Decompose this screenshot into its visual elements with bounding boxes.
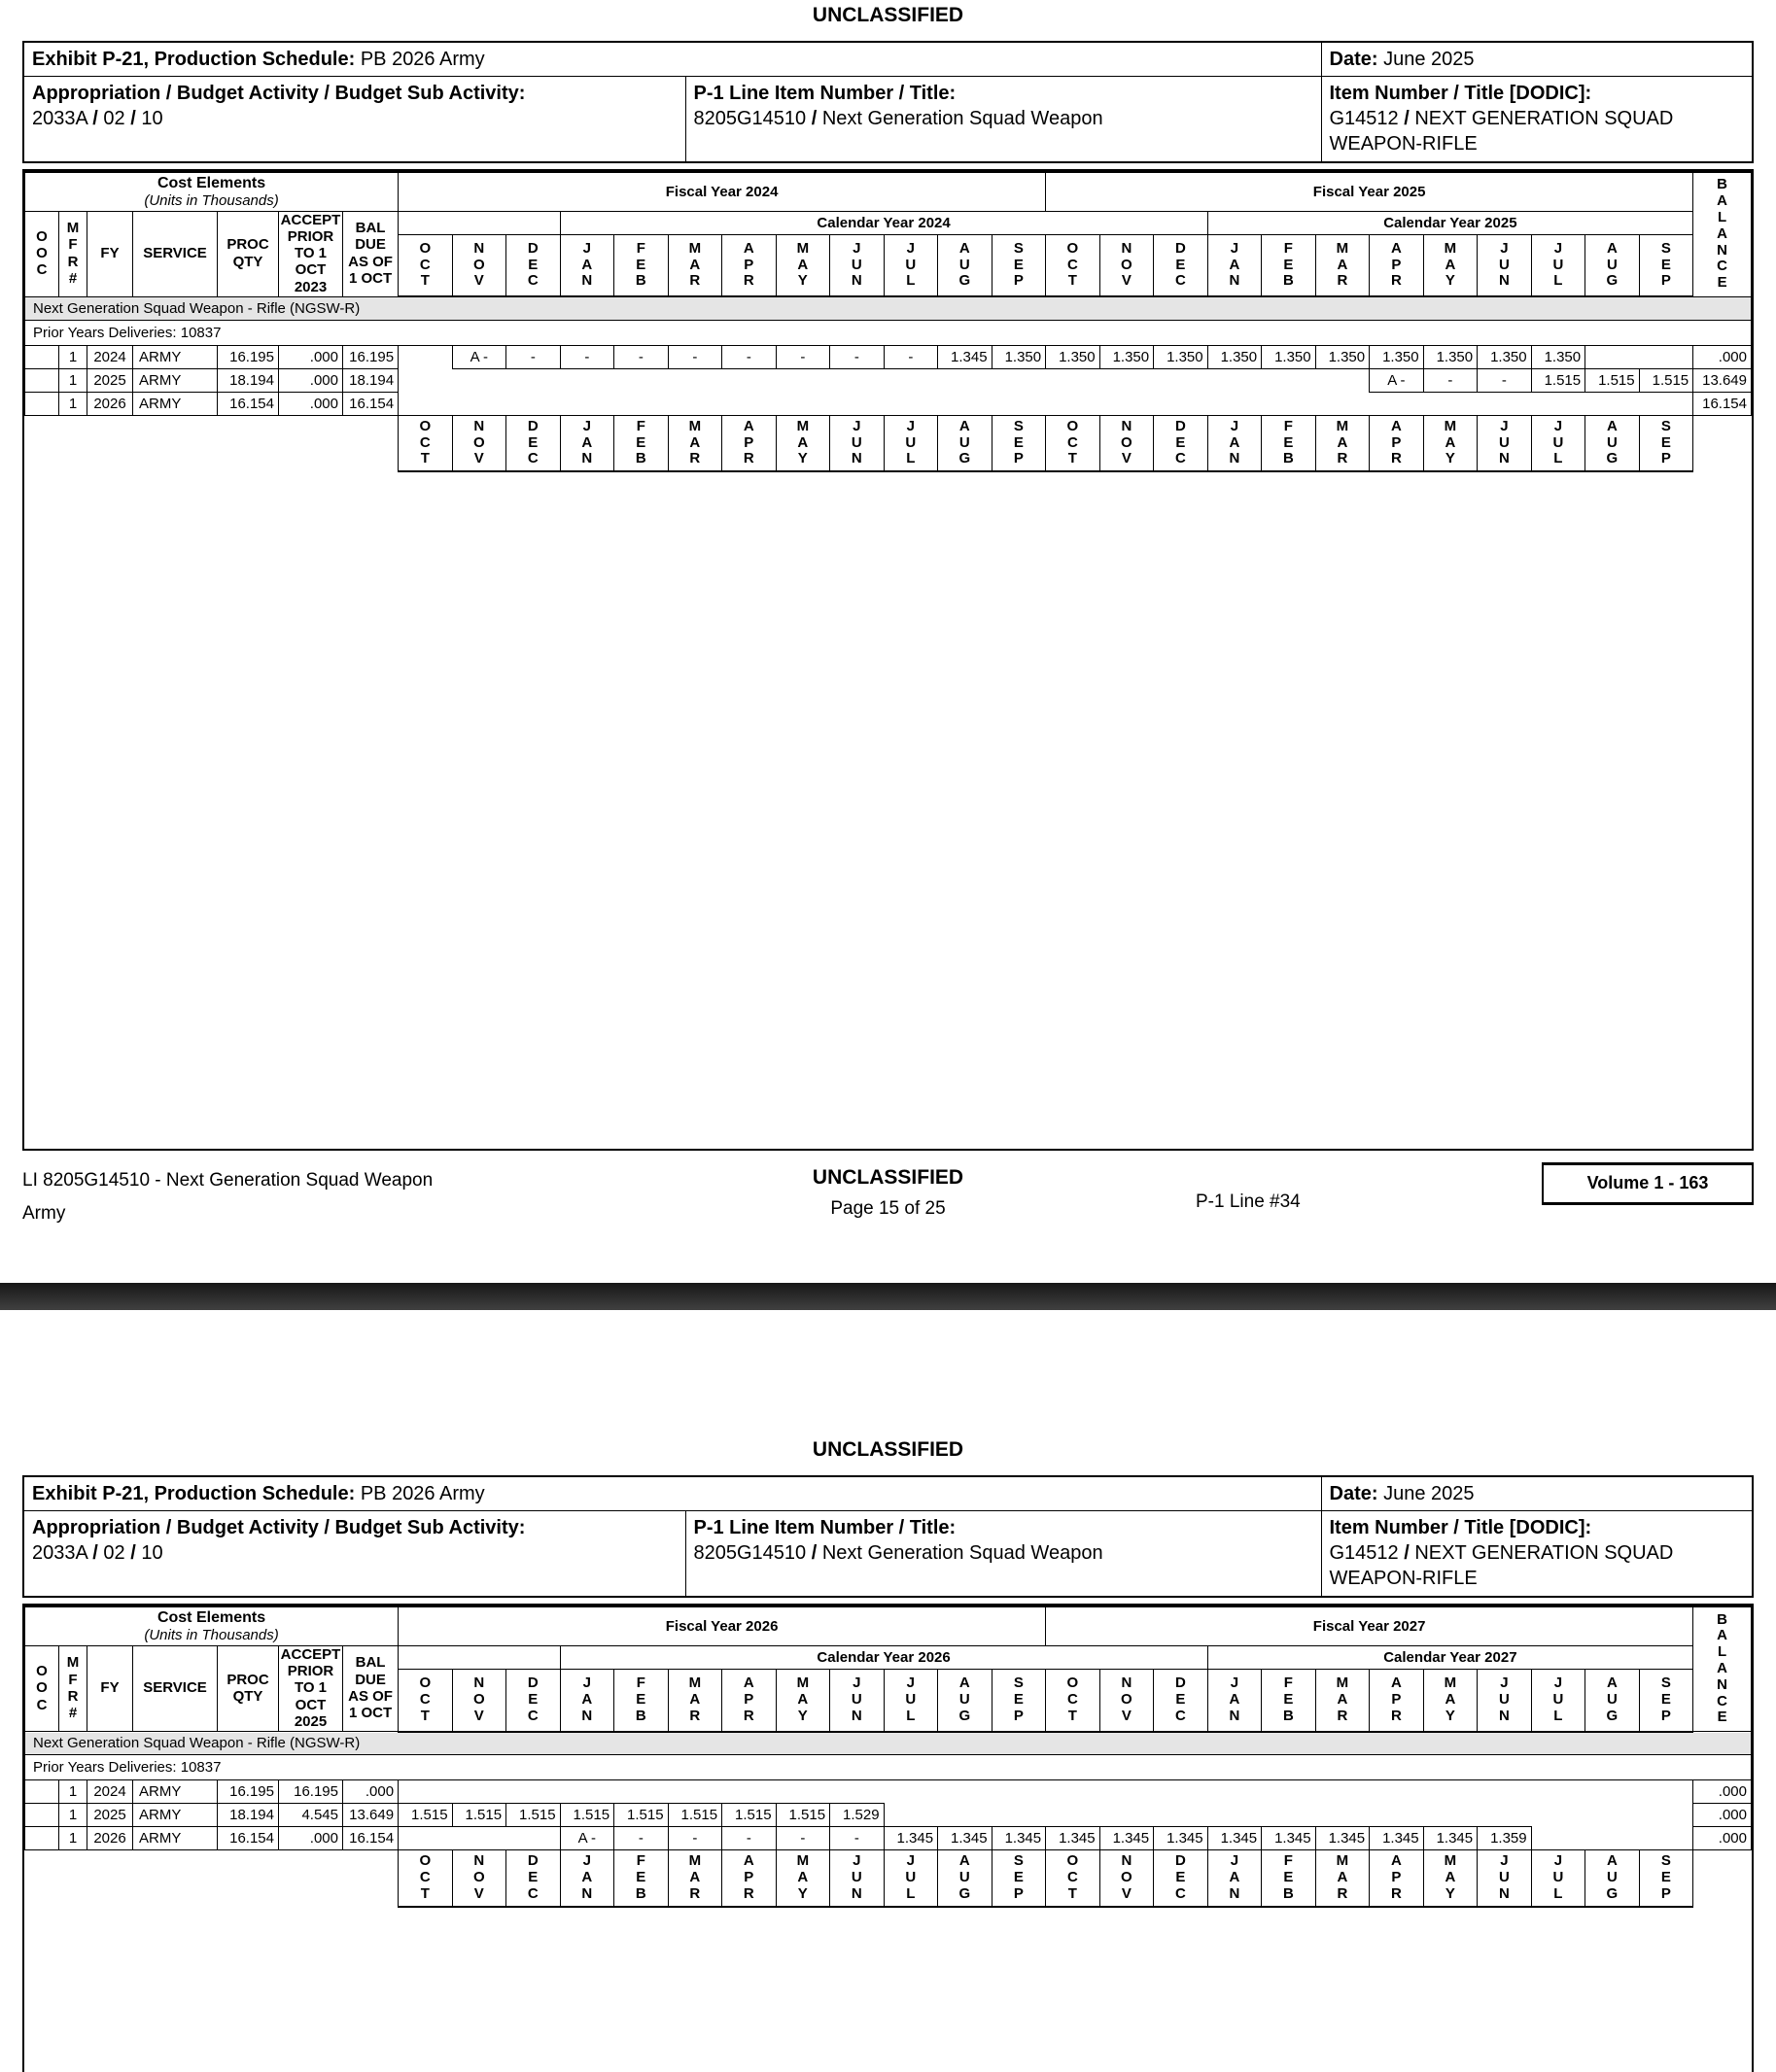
month-header-dec: D E C xyxy=(1154,234,1208,296)
p1-line-item-label: P-1 Line Item Number / Title: xyxy=(694,1515,1313,1540)
month-footer-jul: J U L xyxy=(884,1850,938,1907)
month-delivery-cell xyxy=(1046,392,1100,415)
ooc-cell xyxy=(25,1827,59,1850)
fy-header: FY xyxy=(87,1645,133,1731)
month-delivery-cell: 1.515 xyxy=(506,1804,561,1827)
month-delivery-cell: 1.350 xyxy=(1370,345,1424,368)
appropriation-label: Appropriation / Budget Activity / Budget… xyxy=(32,81,678,106)
month-delivery-cell xyxy=(1639,392,1693,415)
month-delivery-cell xyxy=(1154,392,1208,415)
mfr-header: M F R # xyxy=(59,211,87,296)
month-delivery-cell xyxy=(722,392,777,415)
fy-header: FY xyxy=(87,211,133,296)
footer-center: UNCLASSIFIED Page 15 of 25 xyxy=(22,1162,1754,1223)
month-delivery-cell xyxy=(1585,1827,1640,1850)
month-footer-mar: M A R xyxy=(1315,1850,1370,1907)
month-delivery-cell xyxy=(884,1780,938,1804)
month-footer-jul: J U L xyxy=(1531,1850,1585,1907)
proc-qty-cell: 16.154 xyxy=(218,392,279,415)
cost-elements-title: Cost Elements xyxy=(25,175,398,192)
balance-column-header: B A L A N C E xyxy=(1693,1606,1752,1731)
month-header-apr: A P R xyxy=(1370,234,1424,296)
service-cell: ARMY xyxy=(133,1827,218,1850)
p1-line-item-value: 8205G14510 / Next Generation Squad Weapo… xyxy=(694,1540,1313,1566)
proc-qty-header: PROC QTY xyxy=(218,211,279,296)
month-delivery-cell: A - xyxy=(560,1827,614,1850)
month-header-dec: D E C xyxy=(1154,1670,1208,1732)
month-header-aug: A U G xyxy=(1585,234,1640,296)
ooc-cell xyxy=(25,345,59,368)
p1-line-item-value: 8205G14510 / Next Generation Squad Weapo… xyxy=(694,106,1313,131)
month-delivery-cell xyxy=(614,368,669,392)
month-delivery-cell xyxy=(1046,1780,1100,1804)
month-delivery-cell xyxy=(1423,1804,1478,1827)
month-delivery-cell xyxy=(668,1780,722,1804)
month-delivery-cell xyxy=(1639,1827,1693,1850)
delivery-row-fy2024: 12024ARMY16.195.00016.195A ---------1.34… xyxy=(25,345,1752,368)
balance-column-header: B A L A N C E xyxy=(1693,172,1752,296)
month-delivery-cell: 1.515 xyxy=(399,1804,453,1827)
month-delivery-cell xyxy=(1099,1780,1154,1804)
month-header-oct: O C T xyxy=(1046,1670,1100,1732)
balance-cell: 16.154 xyxy=(1693,392,1752,415)
month-footer-nov: N O V xyxy=(1099,1850,1154,1907)
month-delivery-cell: - xyxy=(830,1827,885,1850)
month-delivery-cell xyxy=(1207,1804,1262,1827)
month-header-nov: N O V xyxy=(1099,1670,1154,1732)
calendar-year-band-1: Calendar Year 2026 xyxy=(560,1645,1207,1669)
month-delivery-cell xyxy=(506,392,561,415)
table-empty-area xyxy=(25,471,1752,1149)
calendar-year-band-2: Calendar Year 2027 xyxy=(1207,1645,1693,1669)
fy-cell: 2026 xyxy=(87,1827,133,1850)
month-delivery-cell: - xyxy=(614,1827,669,1850)
month-footer-sep: S E P xyxy=(1639,1850,1693,1907)
month-delivery-cell xyxy=(1370,392,1424,415)
month-delivery-cell xyxy=(506,1827,561,1850)
month-delivery-cell xyxy=(992,392,1046,415)
month-footer-apr: A P R xyxy=(722,415,777,471)
month-footer-mar: M A R xyxy=(668,1850,722,1907)
exhibit-value: PB 2026 Army xyxy=(361,1483,485,1504)
month-header-nov: N O V xyxy=(452,234,506,296)
month-delivery-cell xyxy=(1585,1804,1640,1827)
month-delivery-cell xyxy=(1585,1780,1640,1804)
month-delivery-cell: 1.515 xyxy=(1531,368,1585,392)
appropriation-label: Appropriation / Budget Activity / Budget… xyxy=(32,1515,678,1540)
month-delivery-cell: 1.350 xyxy=(1099,345,1154,368)
page-break-divider xyxy=(0,1283,1776,1310)
month-delivery-cell xyxy=(1262,368,1316,392)
month-footer-spacer-left xyxy=(25,415,399,471)
month-delivery-cell xyxy=(1585,345,1640,368)
exhibit-header-row2: Appropriation / Budget Activity / Budget… xyxy=(23,77,1753,162)
page2-classification-banner: UNCLASSIFIED xyxy=(0,1438,1776,1462)
month-delivery-cell xyxy=(1154,368,1208,392)
month-footer-sep: S E P xyxy=(992,415,1046,471)
month-delivery-cell xyxy=(452,368,506,392)
item-number-cell: Item Number / Title [DODIC]:G14512 / NEX… xyxy=(1321,1511,1753,1597)
bal-due-cell: 16.195 xyxy=(343,345,399,368)
exhibit-header-row1: Exhibit P-21, Production Schedule: PB 20… xyxy=(23,1476,1753,1511)
calendar-year-spacer xyxy=(399,211,561,234)
cost-elements-units: (Units in Thousands) xyxy=(25,192,398,209)
appropriation-cell: Appropriation / Budget Activity / Budget… xyxy=(23,77,685,162)
month-header-may: M A Y xyxy=(1423,234,1478,296)
calendar-year-band-1: Calendar Year 2024 xyxy=(560,211,1207,234)
month-delivery-cell xyxy=(1046,368,1100,392)
month-delivery-cell: - xyxy=(560,345,614,368)
appropriation-cell: Appropriation / Budget Activity / Budget… xyxy=(23,1511,685,1597)
month-delivery-cell: 1.359 xyxy=(1478,1827,1532,1850)
month-footer-dec: D E C xyxy=(1154,1850,1208,1907)
month-delivery-cell xyxy=(1315,392,1370,415)
mfr-cell: 1 xyxy=(59,1780,87,1804)
month-footer-dec: D E C xyxy=(1154,415,1208,471)
month-delivery-cell: 1.515 xyxy=(776,1804,830,1827)
month-delivery-cell xyxy=(776,1780,830,1804)
month-footer-dec: D E C xyxy=(506,415,561,471)
exhibit-header-table-2: Exhibit P-21, Production Schedule: PB 20… xyxy=(22,1475,1754,1598)
item-number-value: G14512 / NEXT GENERATION SQUAD WEAPON-RI… xyxy=(1330,1540,1745,1591)
bal-due-header: BAL DUE AS OF 1 OCT xyxy=(343,211,399,296)
cost-elements-header: Cost Elements(Units in Thousands) xyxy=(25,1606,399,1645)
month-footer-mar: M A R xyxy=(668,415,722,471)
month-footer-feb: F E B xyxy=(1262,415,1316,471)
month-delivery-cell xyxy=(506,368,561,392)
page-1: Exhibit P-21, Production Schedule: PB 20… xyxy=(22,41,1754,1215)
fy-cell: 2024 xyxy=(87,1780,133,1804)
mfr-cell: 1 xyxy=(59,1827,87,1850)
ooc-cell xyxy=(25,1780,59,1804)
month-footer-aug: A U G xyxy=(938,1850,992,1907)
month-delivery-cell xyxy=(1478,1804,1532,1827)
month-footer-jan: J A N xyxy=(560,415,614,471)
month-header-jan: J A N xyxy=(1207,234,1262,296)
month-header-oct: O C T xyxy=(399,234,453,296)
month-delivery-cell xyxy=(776,368,830,392)
month-footer-nov: N O V xyxy=(1099,415,1154,471)
month-header-mar: M A R xyxy=(1315,234,1370,296)
month-delivery-cell xyxy=(1262,1804,1316,1827)
ooc-cell xyxy=(25,1804,59,1827)
service-cell: ARMY xyxy=(133,392,218,415)
month-delivery-cell xyxy=(1207,1780,1262,1804)
month-delivery-cell xyxy=(1423,392,1478,415)
month-delivery-cell xyxy=(452,392,506,415)
month-header-may: M A Y xyxy=(776,1670,830,1732)
month-header-may: M A Y xyxy=(1423,1670,1478,1732)
production-table: Cost Elements(Units in Thousands)Fiscal … xyxy=(24,172,1752,1150)
month-header-oct: O C T xyxy=(1046,234,1100,296)
month-delivery-cell: 1.345 xyxy=(884,1827,938,1850)
month-footer-jun: J U N xyxy=(830,1850,885,1907)
month-footer-oct: O C T xyxy=(399,415,453,471)
month-footer-feb: F E B xyxy=(614,1850,669,1907)
month-header-jan: J A N xyxy=(560,1670,614,1732)
accept-prior-cell: .000 xyxy=(279,392,343,415)
month-delivery-cell xyxy=(452,1827,506,1850)
month-delivery-cell: 1.345 xyxy=(1370,1827,1424,1850)
balance-cell: 13.649 xyxy=(1693,368,1752,392)
service-cell: ARMY xyxy=(133,345,218,368)
month-header-dec: D E C xyxy=(506,234,561,296)
month-delivery-cell xyxy=(1585,392,1640,415)
month-delivery-cell xyxy=(399,1780,453,1804)
month-delivery-cell: 1.515 xyxy=(1585,368,1640,392)
month-footer-spacer-left xyxy=(25,1850,399,1907)
footer-page-number: Page 15 of 25 xyxy=(22,1194,1754,1223)
month-delivery-cell xyxy=(399,392,453,415)
bal-due-cell: 16.154 xyxy=(343,392,399,415)
proc-qty-cell: 16.195 xyxy=(218,345,279,368)
month-header-feb: F E B xyxy=(1262,1670,1316,1732)
month-delivery-cell xyxy=(452,1780,506,1804)
month-delivery-cell xyxy=(560,368,614,392)
month-header-jul: J U L xyxy=(1531,1670,1585,1732)
month-header-apr: A P R xyxy=(722,1670,777,1732)
month-header-sep: S E P xyxy=(1639,234,1693,296)
month-header-mar: M A R xyxy=(1315,1670,1370,1732)
service-cell: ARMY xyxy=(133,368,218,392)
ooc-cell xyxy=(25,392,59,415)
month-footer-nov: N O V xyxy=(452,1850,506,1907)
month-footer-jan: J A N xyxy=(1207,1850,1262,1907)
month-delivery-cell: 1.345 xyxy=(1046,1827,1100,1850)
cost-elements-title: Cost Elements xyxy=(25,1609,398,1627)
month-delivery-cell xyxy=(776,392,830,415)
page1-classification-banner: UNCLASSIFIED xyxy=(0,0,1776,27)
month-delivery-cell: 1.350 xyxy=(1423,345,1478,368)
balance-cell: .000 xyxy=(1693,1827,1752,1850)
fy-cell: 2026 xyxy=(87,392,133,415)
month-delivery-cell xyxy=(1154,1804,1208,1827)
month-delivery-cell xyxy=(1315,1804,1370,1827)
month-header-mar: M A R xyxy=(668,234,722,296)
footer-p1-line-number: P-1 Line #34 xyxy=(1196,1191,1301,1213)
item-number-cell: Item Number / Title [DODIC]:G14512 / NEX… xyxy=(1321,77,1753,162)
month-delivery-cell: 1.345 xyxy=(1154,1827,1208,1850)
month-delivery-cell xyxy=(938,368,992,392)
balance-cell: .000 xyxy=(1693,1804,1752,1827)
month-delivery-cell xyxy=(1531,392,1585,415)
month-footer-feb: F E B xyxy=(1262,1850,1316,1907)
prior-years-deliveries: Prior Years Deliveries: 10837 xyxy=(25,320,1752,345)
exhibit-label: Exhibit P-21, Production Schedule: xyxy=(32,49,355,70)
month-delivery-cell: 1.515 xyxy=(1639,368,1693,392)
date-value: June 2025 xyxy=(1383,49,1474,70)
month-delivery-cell: 1.345 xyxy=(1207,1827,1262,1850)
appropriation-value: 2033A / 02 / 10 xyxy=(32,1540,678,1566)
month-header-dec: D E C xyxy=(506,1670,561,1732)
month-header-feb: F E B xyxy=(614,234,669,296)
p1-line-item-cell: P-1 Line Item Number / Title:8205G14510 … xyxy=(685,1511,1321,1597)
month-delivery-cell xyxy=(938,1804,992,1827)
month-footer-sep: S E P xyxy=(1639,415,1693,471)
month-delivery-cell: 1.515 xyxy=(668,1804,722,1827)
date-label: Date: xyxy=(1330,1483,1378,1504)
cost-elements-header: Cost Elements(Units in Thousands) xyxy=(25,172,399,211)
month-header-feb: F E B xyxy=(614,1670,669,1732)
month-header-oct: O C T xyxy=(399,1670,453,1732)
month-header-may: M A Y xyxy=(776,234,830,296)
month-delivery-cell: 1.515 xyxy=(452,1804,506,1827)
month-delivery-cell xyxy=(560,1780,614,1804)
item-number-label: Item Number / Title [DODIC]: xyxy=(1330,81,1745,106)
month-delivery-cell: - xyxy=(668,345,722,368)
month-footer-spacer-right xyxy=(1693,415,1752,471)
month-delivery-cell xyxy=(1207,368,1262,392)
mfr-cell: 1 xyxy=(59,1804,87,1827)
month-delivery-cell xyxy=(1370,1780,1424,1804)
month-header-aug: A U G xyxy=(938,1670,992,1732)
month-delivery-cell xyxy=(938,392,992,415)
month-delivery-cell: - xyxy=(668,1827,722,1850)
month-footer-jun: J U N xyxy=(1478,1850,1532,1907)
accept-prior-cell: 16.195 xyxy=(279,1780,343,1804)
month-delivery-cell: 1.529 xyxy=(830,1804,885,1827)
production-table: Cost Elements(Units in Thousands)Fiscal … xyxy=(24,1606,1752,2072)
page1-footer: LI 8205G14510 - Next Generation Squad We… xyxy=(22,1162,1754,1215)
month-delivery-cell xyxy=(1154,1780,1208,1804)
exhibit-header-row2: Appropriation / Budget Activity / Budget… xyxy=(23,1511,1753,1597)
month-delivery-cell: - xyxy=(776,1827,830,1850)
month-delivery-cell xyxy=(1370,1804,1424,1827)
exhibit-title-cell: Exhibit P-21, Production Schedule: PB 20… xyxy=(23,1476,1321,1511)
month-header-nov: N O V xyxy=(1099,234,1154,296)
cost-elements-units: (Units in Thousands) xyxy=(25,1627,398,1643)
bal-due-cell: 13.649 xyxy=(343,1804,399,1827)
footer-classification: UNCLASSIFIED xyxy=(22,1162,1754,1194)
service-cell: ARMY xyxy=(133,1780,218,1804)
month-header-mar: M A R xyxy=(668,1670,722,1732)
date-label: Date: xyxy=(1330,49,1378,70)
month-delivery-cell: 1.515 xyxy=(614,1804,669,1827)
delivery-row-fy2025: 12025ARMY18.1944.54513.6491.5151.5151.51… xyxy=(25,1804,1752,1827)
footer-volume-badge: Volume 1 - 163 xyxy=(1542,1162,1754,1205)
bal-due-cell: .000 xyxy=(343,1780,399,1804)
accept-prior-header: ACCEPT PRIOR TO 1 OCT 2023 xyxy=(279,211,343,296)
month-delivery-cell: 1.350 xyxy=(1262,345,1316,368)
bal-due-cell: 18.194 xyxy=(343,368,399,392)
month-footer-jun: J U N xyxy=(1478,415,1532,471)
month-delivery-cell xyxy=(399,345,453,368)
ooc-header: O O C xyxy=(25,1645,59,1731)
accept-prior-cell: .000 xyxy=(279,345,343,368)
month-delivery-cell: - xyxy=(506,345,561,368)
month-delivery-cell: - xyxy=(830,345,885,368)
proc-qty-cell: 18.194 xyxy=(218,1804,279,1827)
month-delivery-cell: A - xyxy=(452,345,506,368)
month-delivery-cell xyxy=(614,1780,669,1804)
month-footer-feb: F E B xyxy=(614,415,669,471)
month-delivery-cell xyxy=(884,368,938,392)
date-cell: Date: June 2025 xyxy=(1321,42,1753,77)
ooc-header: O O C xyxy=(25,211,59,296)
month-delivery-cell: 1.350 xyxy=(1046,345,1100,368)
month-footer-aug: A U G xyxy=(1585,415,1640,471)
month-delivery-cell xyxy=(1262,1780,1316,1804)
month-delivery-cell xyxy=(1531,1804,1585,1827)
month-footer-oct: O C T xyxy=(1046,415,1100,471)
month-footer-may: M A Y xyxy=(776,415,830,471)
month-delivery-cell: 1.345 xyxy=(1099,1827,1154,1850)
appropriation-value: 2033A / 02 / 10 xyxy=(32,106,678,131)
month-header-nov: N O V xyxy=(452,1670,506,1732)
month-footer-apr: A P R xyxy=(722,1850,777,1907)
month-delivery-cell xyxy=(884,392,938,415)
month-delivery-cell xyxy=(830,392,885,415)
month-footer-jun: J U N xyxy=(830,415,885,471)
fiscal-year-band-1: Fiscal Year 2026 xyxy=(399,1606,1046,1645)
month-delivery-cell xyxy=(1315,1780,1370,1804)
fy-cell: 2025 xyxy=(87,1804,133,1827)
month-delivery-cell xyxy=(560,392,614,415)
month-delivery-cell xyxy=(1315,368,1370,392)
month-delivery-cell: 1.350 xyxy=(1315,345,1370,368)
month-delivery-cell xyxy=(830,1780,885,1804)
month-header-apr: A P R xyxy=(722,234,777,296)
fy-cell: 2024 xyxy=(87,345,133,368)
accept-prior-header: ACCEPT PRIOR TO 1 OCT 2025 xyxy=(279,1645,343,1731)
month-footer-jan: J A N xyxy=(1207,415,1262,471)
balance-cell: .000 xyxy=(1693,1780,1752,1804)
month-delivery-cell xyxy=(992,1804,1046,1827)
month-header-jan: J A N xyxy=(1207,1670,1262,1732)
month-header-aug: A U G xyxy=(938,234,992,296)
bal-due-cell: 16.154 xyxy=(343,1827,399,1850)
month-header-jul: J U L xyxy=(884,234,938,296)
month-delivery-cell xyxy=(1423,1780,1478,1804)
month-footer-apr: A P R xyxy=(1370,415,1424,471)
month-delivery-cell xyxy=(614,392,669,415)
table-empty-area xyxy=(25,1907,1752,2072)
month-delivery-cell xyxy=(1478,392,1532,415)
month-footer-may: M A Y xyxy=(1423,415,1478,471)
month-header-jun: J U N xyxy=(830,1670,885,1732)
weapon-group-band: Next Generation Squad Weapon - Rifle (NG… xyxy=(25,296,1752,320)
balance-cell: .000 xyxy=(1693,345,1752,368)
month-delivery-cell xyxy=(938,1780,992,1804)
ooc-cell xyxy=(25,368,59,392)
exhibit-header-row1: Exhibit P-21, Production Schedule: PB 20… xyxy=(23,42,1753,77)
proc-qty-cell: 18.194 xyxy=(218,368,279,392)
month-delivery-cell xyxy=(722,368,777,392)
month-delivery-cell: 1.345 xyxy=(938,345,992,368)
month-footer-aug: A U G xyxy=(1585,1850,1640,1907)
month-delivery-cell: - xyxy=(614,345,669,368)
month-footer-spacer-right xyxy=(1693,1850,1752,1907)
month-delivery-cell: 1.350 xyxy=(992,345,1046,368)
month-delivery-cell xyxy=(399,1827,453,1850)
month-footer-sep: S E P xyxy=(992,1850,1046,1907)
month-delivery-cell xyxy=(992,1780,1046,1804)
exhibit-header-table: Exhibit P-21, Production Schedule: PB 20… xyxy=(22,41,1754,163)
month-header-sep: S E P xyxy=(992,1670,1046,1732)
fiscal-year-band-1: Fiscal Year 2024 xyxy=(399,172,1046,211)
month-footer-mar: M A R xyxy=(1315,415,1370,471)
month-delivery-cell xyxy=(506,1780,561,1804)
month-delivery-cell xyxy=(1639,1780,1693,1804)
date-cell: Date: June 2025 xyxy=(1321,1476,1753,1511)
month-delivery-cell xyxy=(884,1804,938,1827)
p1-line-item-label: P-1 Line Item Number / Title: xyxy=(694,81,1313,106)
month-delivery-cell: - xyxy=(884,345,938,368)
weapon-group-band: Next Generation Squad Weapon - Rifle (NG… xyxy=(25,1732,1752,1755)
month-footer-aug: A U G xyxy=(938,415,992,471)
fy-cell: 2025 xyxy=(87,368,133,392)
p1-line-item-cell: P-1 Line Item Number / Title:8205G14510 … xyxy=(685,77,1321,162)
